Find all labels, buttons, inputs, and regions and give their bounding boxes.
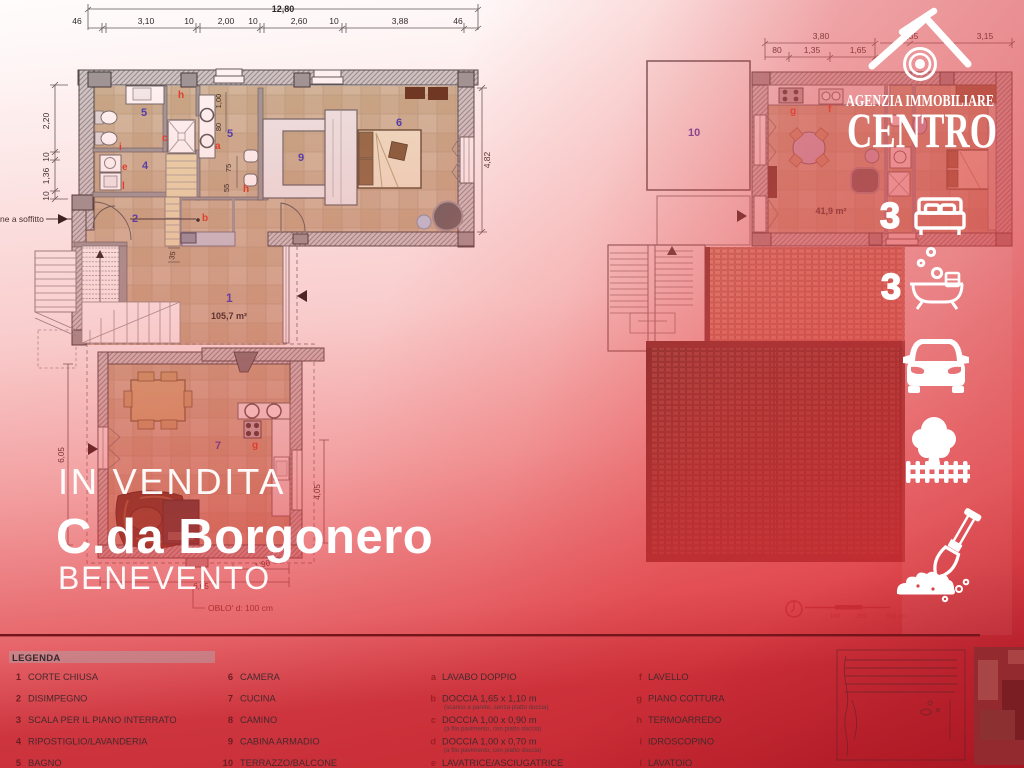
svg-text:a: a [431, 672, 437, 682]
svg-text:5: 5 [16, 758, 21, 768]
svg-text:2: 2 [16, 694, 21, 704]
svg-text:SCALA PER IL PIANO INTERRATO: SCALA PER IL PIANO INTERRATO [28, 715, 177, 725]
svg-text:CORTE CHIUSA: CORTE CHIUSA [28, 672, 99, 682]
svg-text:BENEVENTO: BENEVENTO [58, 560, 271, 596]
svg-text:LAVATRICE/ASCIUGATRICE: LAVATRICE/ASCIUGATRICE [442, 758, 563, 768]
svg-text:IDROSCOPINO: IDROSCOPINO [648, 737, 714, 747]
svg-text:c: c [431, 715, 436, 725]
svg-text:LAVABO DOPPIO: LAVABO DOPPIO [442, 672, 517, 682]
svg-text:TERMOARREDO: TERMOARREDO [648, 715, 721, 725]
svg-text:DOCCIA 1,00 x 0,90 m: DOCCIA 1,00 x 0,90 m [442, 715, 537, 725]
svg-text:7: 7 [228, 694, 233, 704]
svg-text:e: e [431, 758, 436, 768]
svg-text:CAMERA: CAMERA [240, 672, 281, 682]
svg-text:(scarico a parete, senza piatt: (scarico a parete, senza piatto doccia) [444, 704, 549, 711]
svg-text:3: 3 [880, 195, 900, 236]
svg-text:CABINA ARMADIO: CABINA ARMADIO [240, 737, 320, 747]
svg-text:4: 4 [16, 737, 22, 747]
svg-text:b: b [430, 694, 436, 704]
svg-text:DOCCIA 1,00 x 0,70 m: DOCCIA 1,00 x 0,70 m [442, 737, 537, 747]
svg-text:9: 9 [228, 737, 233, 747]
svg-text:CENTRO: CENTRO [847, 102, 997, 158]
svg-text:i: i [639, 737, 642, 747]
svg-text:DISIMPEGNO: DISIMPEGNO [28, 694, 87, 704]
svg-text:(a filo pavimento, con piatto: (a filo pavimento, con piatto doccia) [444, 747, 541, 754]
svg-text:RIPOSTIGLIO/LAVANDERIA: RIPOSTIGLIO/LAVANDERIA [28, 737, 148, 747]
svg-text:CUCINA: CUCINA [240, 694, 276, 704]
svg-text:CAMINO: CAMINO [240, 715, 277, 725]
svg-text:h: h [636, 715, 642, 725]
svg-text:g: g [636, 694, 642, 704]
svg-text:DOCCIA 1,65 x 1,10 m: DOCCIA 1,65 x 1,10 m [442, 694, 537, 704]
svg-text:10: 10 [223, 758, 233, 768]
svg-text:8: 8 [228, 715, 233, 725]
svg-text:6: 6 [228, 672, 233, 682]
svg-text:TERRAZZO/BALCONE: TERRAZZO/BALCONE [240, 758, 337, 768]
svg-text:IN VENDITA: IN VENDITA [58, 461, 286, 502]
svg-text:LAVATOIO: LAVATOIO [648, 758, 692, 768]
svg-text:l: l [639, 758, 642, 768]
svg-text:LEGENDA: LEGENDA [12, 653, 61, 664]
svg-text:PIANO COTTURA: PIANO COTTURA [648, 694, 725, 704]
svg-text:d: d [430, 737, 436, 747]
svg-text:1: 1 [16, 672, 21, 682]
svg-text:BAGNO: BAGNO [28, 758, 62, 768]
svg-text:3: 3 [881, 266, 901, 307]
svg-text:LAVELLO: LAVELLO [648, 672, 689, 682]
svg-text:f: f [639, 672, 643, 682]
svg-text:(a filo pavimento, con piatto: (a filo pavimento, con piatto doccia) [444, 726, 541, 733]
svg-text:3: 3 [16, 715, 21, 725]
svg-text:C.da Borgonero: C.da Borgonero [56, 510, 433, 564]
